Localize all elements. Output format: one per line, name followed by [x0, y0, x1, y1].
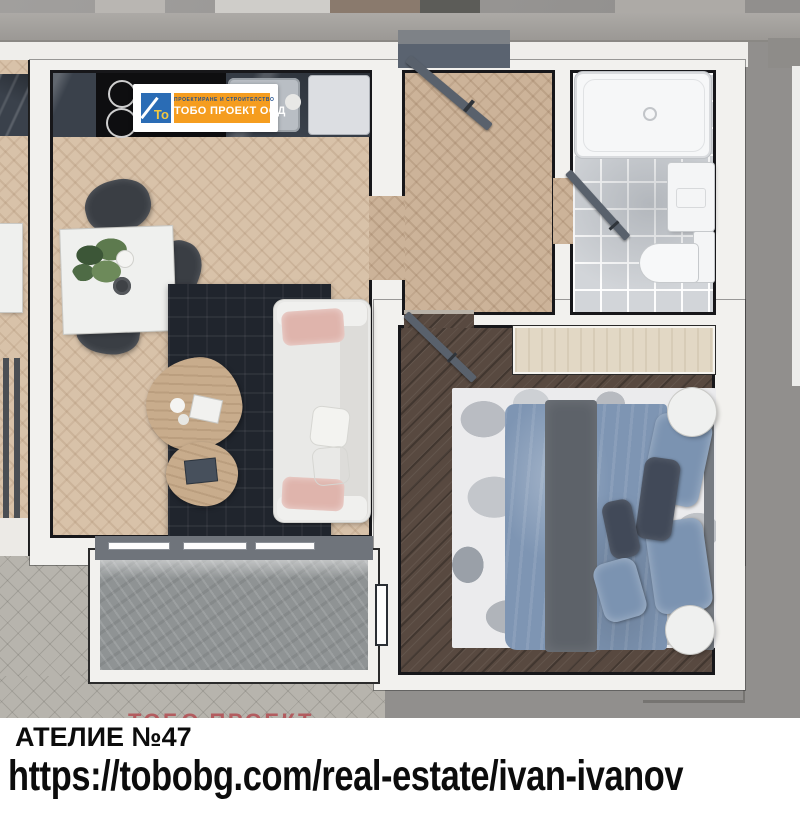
vanity-basin [676, 188, 706, 208]
logo-band: ПРОЕКТИРАНЕ И СТРОИТЕЛСТВО ТОБО ПРОЕКТ О… [174, 93, 270, 123]
logo-tagline: ПРОЕКТИРАНЕ И СТРОИТЕЛСТВО [174, 97, 270, 103]
logo-badge: То ПРОЕКТИРАНЕ И СТРОИТЕЛСТВО ТОБО ПРОЕК… [133, 84, 278, 132]
window-pane [183, 542, 247, 550]
sofa-pillow-white [312, 446, 350, 485]
listing-title: АТЕЛИЕ №47 [15, 722, 192, 753]
balcony-floor [100, 556, 368, 670]
neighbour-table [0, 224, 22, 312]
exterior-step [768, 38, 800, 68]
bathtub-drain [643, 107, 657, 121]
bed-runner-blanket [545, 400, 597, 652]
neighbour-window-frame [14, 358, 20, 518]
neighbour-counter [0, 74, 28, 136]
logo-monogram-box: То [141, 93, 171, 123]
window-pane [255, 542, 315, 550]
doorway-hall-bath [553, 178, 573, 244]
coffee-table-plate [178, 414, 189, 425]
toilet-bowl [640, 244, 698, 282]
side-table [668, 388, 716, 436]
coffee-table-plate [170, 398, 185, 413]
top-strip-photo [95, 0, 165, 13]
top-strip-photo [615, 0, 745, 13]
side-table [666, 606, 714, 654]
exterior-wall-sliver [792, 66, 800, 386]
passage-living-hall [369, 196, 405, 280]
sofa-pillow-pink [281, 308, 345, 346]
window-pane [108, 542, 170, 550]
logo-monogram: То [154, 108, 169, 121]
kitchen-dish [285, 94, 301, 110]
room-hallway [402, 70, 555, 315]
logo-company: ТОБО ПРОЕКТ ООД [174, 105, 270, 117]
floor-plan-screenshot: То ПРОЕКТИРАНЕ И СТРОИТЕЛСТВО ТОБО ПРОЕК… [0, 0, 800, 820]
table-bowl [113, 277, 131, 295]
cooktop-burner [108, 80, 136, 108]
bedroom-window [375, 584, 388, 646]
neighbour-window-frame [3, 358, 9, 518]
top-strip-photo [330, 0, 420, 13]
table-plate [117, 251, 133, 267]
top-strip-photo [420, 0, 480, 13]
neighbour-wall [0, 518, 28, 556]
fridge [308, 75, 370, 135]
exterior-step-line [643, 700, 745, 703]
sofa-pillow-white [310, 406, 350, 448]
threshold-bedroom [404, 310, 474, 314]
listing-url: https://tobobg.com/real-estate/ivan-ivan… [8, 752, 683, 801]
footer-band: АТЕЛИЕ №47 https://tobobg.com/real-estat… [0, 718, 800, 820]
coffee-table-book [185, 458, 217, 483]
top-strip-photo [215, 0, 330, 13]
wardrobe [513, 326, 715, 374]
